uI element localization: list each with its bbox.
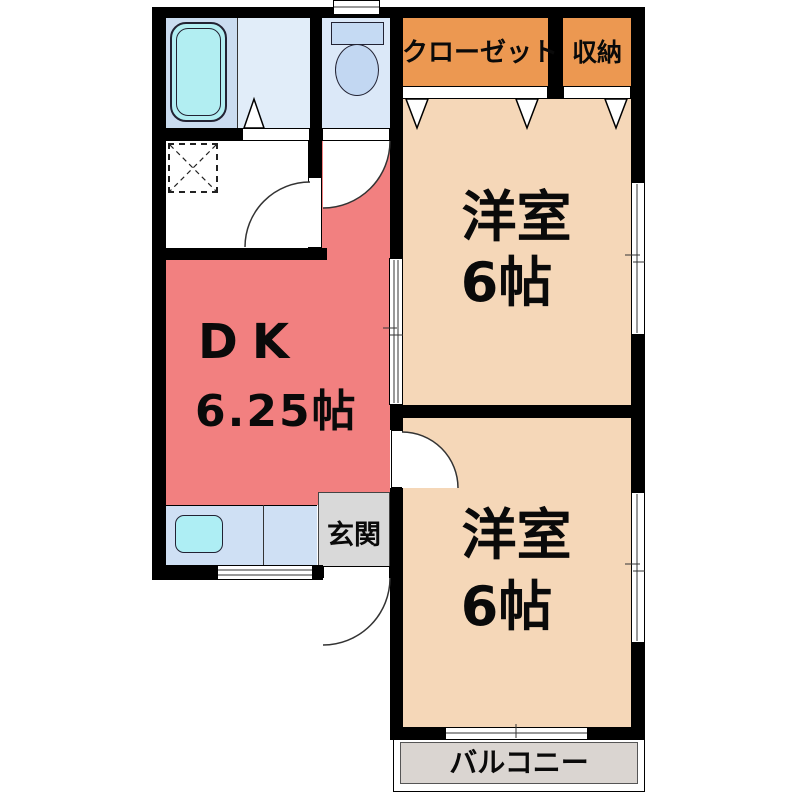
kitchen-counter-divider-line xyxy=(263,505,264,565)
window-room-bottom-south xyxy=(445,727,588,740)
bathroom-partition-line xyxy=(237,18,238,128)
closet-label: クローゼット xyxy=(402,40,548,66)
kitchen-sink-icon xyxy=(175,515,223,553)
entrance-label: 玄関 xyxy=(318,522,390,549)
closet-sliding-strip xyxy=(402,86,548,99)
western-room-top-name: 洋室 xyxy=(402,190,631,245)
wall-right-lower xyxy=(631,643,645,740)
window-toilet-top xyxy=(333,0,380,15)
entry-door-leaf xyxy=(323,566,390,579)
entry-door-swing-arc xyxy=(323,578,390,645)
wall-right-upper xyxy=(631,7,645,182)
dk-name: DK xyxy=(198,318,303,366)
bathroom-door-strip xyxy=(242,128,310,141)
western-room-bottom-floor xyxy=(402,418,631,727)
bottomroom-door-leaf xyxy=(391,430,403,488)
wall-bottomroom-right xyxy=(588,727,645,740)
floor-plan: クローゼット 収納 洋室 6帖 DK 6.25帖 洋室 6帖 玄関 バルコニー xyxy=(0,0,800,800)
bathtub-icon xyxy=(170,22,227,122)
storage-label: 収納 xyxy=(563,40,631,65)
wall-bottomroom-left xyxy=(390,727,445,740)
wall-washroom-bottom xyxy=(152,248,327,260)
storage-sliding-strip xyxy=(563,86,631,99)
wall-bottomleft-a xyxy=(152,565,217,580)
toilet-bowl-icon xyxy=(335,44,379,96)
western-room-bottom-name: 洋室 xyxy=(402,508,631,563)
wall-washroom-right xyxy=(308,128,322,177)
balcony-label: バルコニー xyxy=(400,749,638,777)
dk-size: 6.25帖 xyxy=(195,390,358,434)
western-room-top-size: 6帖 xyxy=(392,256,621,310)
window-room-bottom-right xyxy=(631,492,645,643)
washroom-door-leaf xyxy=(308,177,322,248)
toilet-tank-icon xyxy=(331,22,384,45)
bathroom-floor-light xyxy=(237,18,310,128)
wall-bottomleft-pillar xyxy=(313,565,323,580)
wall-rooms-divider xyxy=(390,405,645,418)
washing-machine-pan-icon xyxy=(168,143,218,193)
wall-left xyxy=(152,7,166,580)
bathtub-inner-line xyxy=(176,28,221,116)
wall-bath-bottom xyxy=(152,128,242,141)
wall-toilet-left xyxy=(310,7,322,130)
window-kitchen xyxy=(217,565,313,580)
western-room-bottom-size: 6帖 xyxy=(392,580,621,634)
toilet-hall-door-strip xyxy=(322,128,390,141)
window-room-top-right xyxy=(631,182,645,335)
